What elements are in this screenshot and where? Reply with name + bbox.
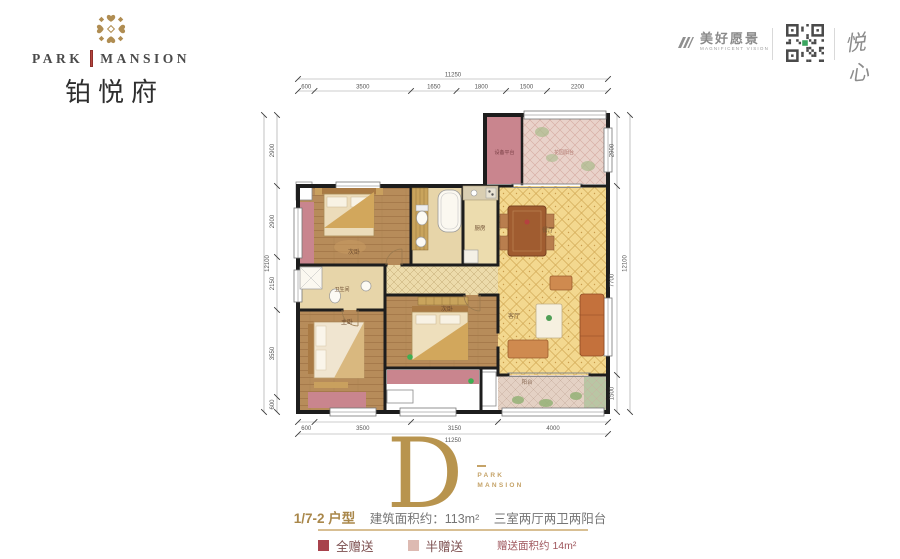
unit-brand-small: PARK MANSION	[477, 457, 523, 491]
partner-divider	[772, 28, 773, 60]
brand-cn-name: 铂悦府	[32, 72, 190, 109]
vision-icon	[676, 34, 696, 50]
legend-half-swatch	[408, 540, 419, 551]
svg-text:3550: 3550	[270, 346, 276, 360]
legend-half-label: 半赠送	[426, 536, 464, 555]
svg-text:1500: 1500	[610, 386, 616, 400]
svg-text:卫生间: 卫生间	[334, 286, 349, 293]
svg-text:2900: 2900	[610, 143, 616, 157]
svg-text:600: 600	[270, 399, 276, 410]
bonus-note: 赠送面积约 14m²	[497, 538, 576, 553]
legend-item-full: 全赠送	[318, 536, 374, 555]
unit-layout: 三室两厅两卫两阳台	[494, 512, 607, 526]
svg-text:1800: 1800	[475, 85, 489, 91]
svg-text:2150: 2150	[270, 276, 276, 290]
unit-letter-block: D PARK MANSION	[330, 436, 580, 512]
svg-text:1500: 1500	[520, 85, 534, 91]
unit-title-row: 1/7-2 户型 建筑面积约：113m² 三室两厅两卫两阳台	[250, 507, 650, 528]
legend-full-swatch	[318, 540, 329, 551]
unit-brand-small-line1: PARK	[477, 471, 523, 481]
svg-text:12100: 12100	[265, 254, 271, 271]
svg-text:11250: 11250	[445, 73, 462, 79]
unit-area: 建筑面积约：113m²	[370, 512, 480, 526]
svg-text:3500: 3500	[356, 426, 370, 432]
qr-code	[786, 24, 824, 62]
svg-text:600: 600	[301, 85, 312, 91]
brand-name-right: MANSION	[100, 51, 190, 67]
svg-text:1650: 1650	[427, 85, 441, 91]
svg-text:2200: 2200	[571, 85, 585, 91]
svg-text:客厅: 客厅	[508, 312, 520, 320]
svg-text:主卧: 主卧	[341, 318, 353, 326]
unit-type: 1/7-2 户型	[294, 511, 356, 526]
partner-vision-logo: 美好愿景 MAGNIFICENT VISION	[676, 32, 769, 52]
svg-text:次卧: 次卧	[348, 248, 360, 256]
svg-text:次卧: 次卧	[441, 305, 453, 313]
partner-logos: 美好愿景 MAGNIFICENT VISION 悦心	[670, 20, 885, 68]
unit-letter: D	[386, 436, 463, 512]
svg-text:12100: 12100	[623, 254, 629, 271]
partner-divider	[834, 28, 835, 60]
vision-tagline: MAGNIFICENT VISION	[700, 47, 769, 52]
brand-name: PARK MANSION	[32, 50, 190, 67]
svg-text:600: 600	[301, 426, 312, 432]
svg-text:厨房: 厨房	[474, 224, 486, 232]
svg-text:花园阳台: 花园阳台	[554, 149, 574, 156]
svg-text:7700: 7700	[610, 273, 616, 287]
svg-text:4000: 4000	[546, 426, 560, 432]
svg-text:2900: 2900	[270, 214, 276, 228]
svg-text:3500: 3500	[356, 85, 370, 91]
legend-item-half: 半赠送	[408, 536, 464, 555]
title-divider	[318, 529, 588, 531]
page: PARK MANSION 铂悦府 美好愿景 MAGNIFICENT VISION…	[0, 0, 900, 559]
floor-plan: 设备平台花园阳台次卧厨房餐厅客厅卫生间主卧次卧阳台 11250600350016…	[250, 70, 645, 445]
unit-brand-small-line2: MANSION	[477, 481, 523, 491]
brand-seal-icon	[90, 50, 93, 67]
brand-name-left: PARK	[32, 51, 83, 67]
svg-text:2900: 2900	[270, 143, 276, 157]
dash-icon	[477, 465, 486, 467]
legend: 全赠送 半赠送 赠送面积约 14m²	[318, 536, 618, 555]
legend-full-label: 全赠送	[336, 536, 374, 555]
brand-emblem-icon	[94, 12, 128, 46]
calligraphy-mark: 悦心	[843, 24, 888, 88]
svg-text:设备平台: 设备平台	[494, 149, 514, 156]
header-logo: PARK MANSION 铂悦府	[32, 12, 190, 109]
svg-text:阳台: 阳台	[521, 378, 533, 386]
svg-text:餐厅: 餐厅	[542, 226, 554, 234]
vision-name: 美好愿景	[700, 32, 769, 45]
floor-plan-svg: 设备平台花园阳台次卧厨房餐厅客厅卫生间主卧次卧阳台 11250600350016…	[250, 70, 645, 445]
